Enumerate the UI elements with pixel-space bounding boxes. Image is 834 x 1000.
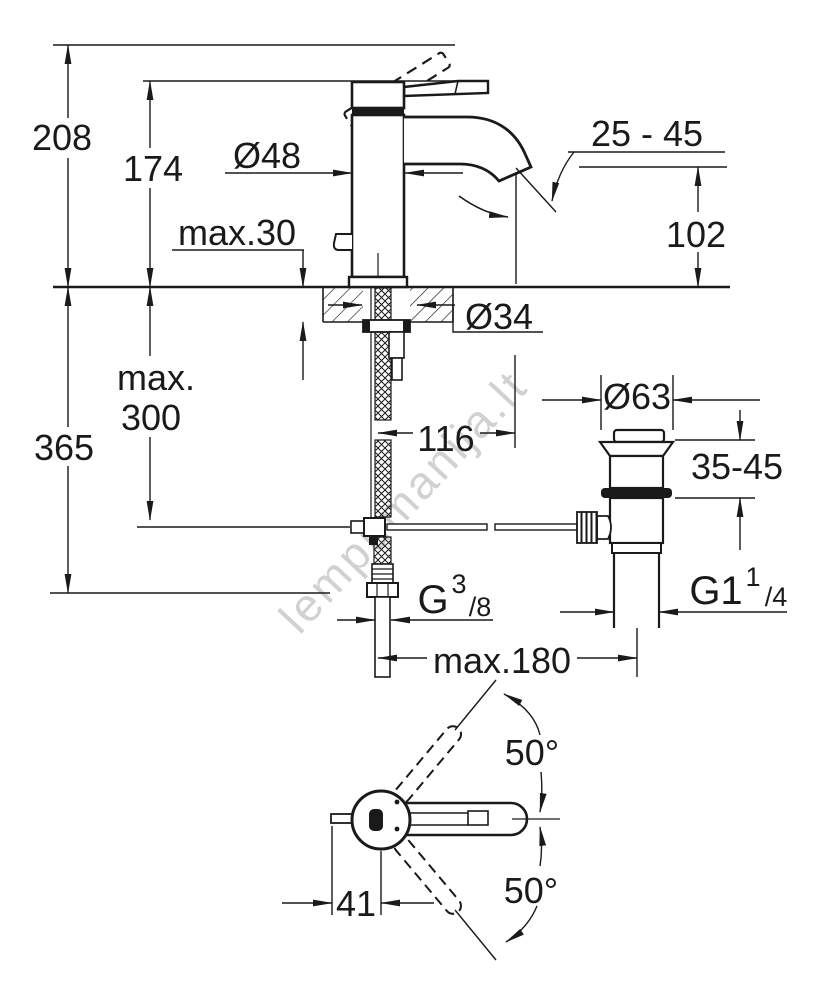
technical-drawing-page: lempumanija.lt [0, 0, 834, 1000]
drain-thread-base: G1 [689, 569, 742, 613]
label-overall-depth: 365 [34, 427, 94, 468]
lever-handle [404, 81, 488, 96]
label-hose-limit-2: 300 [121, 397, 181, 438]
label-swivel-lower: 50° [504, 870, 558, 911]
pop-up-rod [387, 524, 577, 530]
watermark-text: lempumanija.lt [269, 360, 538, 643]
mounting-washer [363, 320, 410, 332]
drain-thread-sup: 1 [745, 562, 760, 592]
handle-socket [369, 809, 383, 831]
drain-lower-body [610, 498, 663, 543]
flow-direction-arrow [459, 196, 508, 217]
supply-tube [375, 597, 390, 677]
supply-hose [375, 288, 391, 320]
supply-thread-sub: /8 [469, 592, 492, 622]
supply-assembly [351, 288, 577, 677]
spout [404, 117, 531, 181]
label-hole-diameter: Ø34 [465, 296, 533, 337]
label-swivel-upper: 50° [505, 732, 559, 773]
drain-plug [614, 430, 664, 442]
drain-flange [600, 442, 673, 456]
handle-swivel-lower-dashed [391, 834, 464, 917]
label-drain-mount-range: 35-45 [691, 446, 783, 487]
drain-thread-sub: /4 [765, 582, 788, 612]
label-spout-height: 102 [666, 214, 726, 255]
label-drain-flange-diameter: Ø63 [603, 376, 671, 417]
faucet-body [352, 115, 404, 277]
label-aerator-range: 25 - 45 [591, 113, 703, 154]
lever-top-view [392, 803, 527, 835]
base-flange [349, 277, 407, 287]
drain-collar [612, 543, 661, 553]
drain-tailpipe [614, 553, 659, 628]
label-overall-height: 208 [32, 117, 92, 158]
top-view [282, 680, 560, 960]
label-supply-thread: G 3 /8 [417, 569, 491, 622]
label-hose-limit-1: max. [117, 357, 195, 398]
pop-up-rod-knob [334, 234, 352, 250]
label-spout-reach: 116 [417, 418, 474, 459]
faucet-front-view [334, 52, 556, 287]
faucet-dimension-drawing: lempumanija.lt [0, 0, 834, 1000]
drain-rod-knob [577, 512, 611, 543]
drain-assembly [577, 430, 673, 628]
label-deck-thickness: max.30 [178, 212, 296, 253]
label-handle-offset: 41 [336, 883, 376, 924]
cartridge-cap [352, 82, 404, 108]
drain-gasket [601, 488, 672, 498]
hose-adapter [372, 564, 393, 583]
handle-swivel-upper-dashed [391, 723, 464, 806]
label-reach-limit: max.180 [433, 640, 571, 681]
supply-thread-base: G [417, 578, 448, 622]
hose-nut [367, 583, 398, 597]
label-body-diameter: Ø48 [233, 135, 301, 176]
rear-rod-stub [331, 814, 352, 823]
drain-upper-body [610, 456, 663, 488]
supply-thread-sup: 3 [451, 569, 466, 599]
mounting-stud [389, 332, 404, 380]
label-drain-thread: G1 1 /4 [689, 562, 787, 613]
aerator-leader-line [516, 168, 556, 212]
label-body-height: 174 [123, 148, 183, 189]
